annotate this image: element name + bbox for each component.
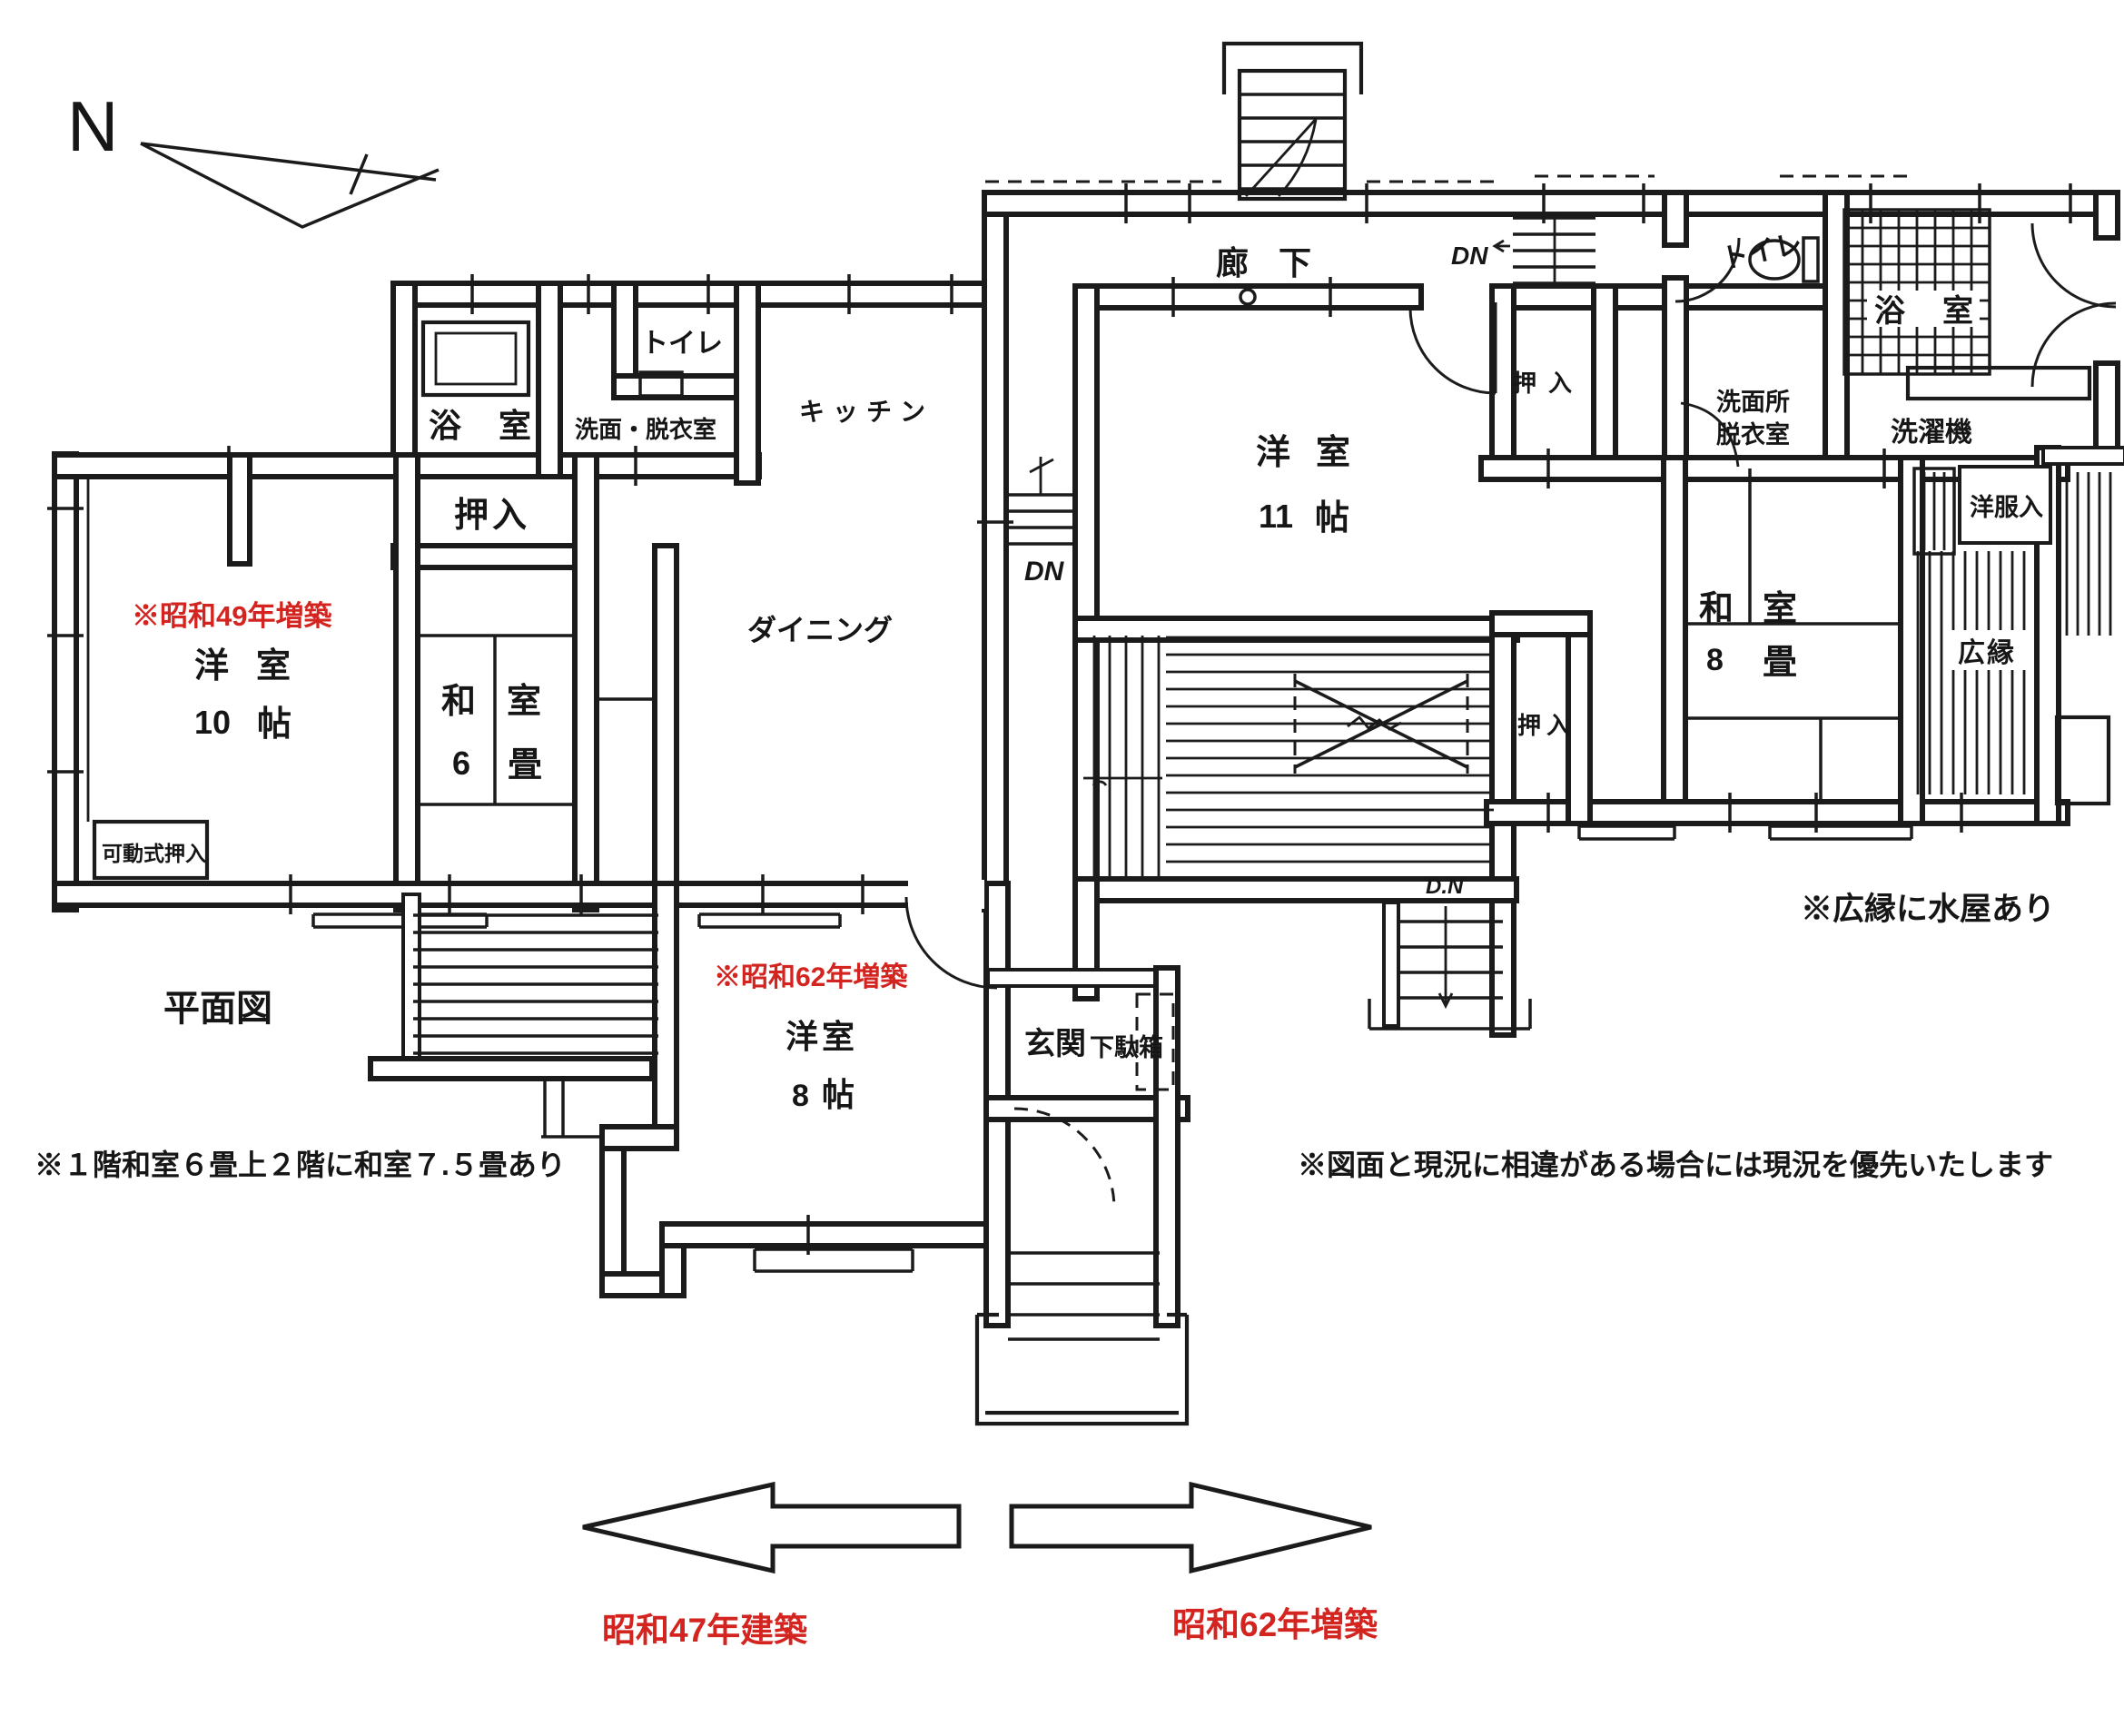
svg-text:広縁: 広縁 [1958, 638, 2016, 668]
svg-text:洋室: 洋室 [785, 1018, 858, 1055]
svg-text:帖: 帖 [822, 1076, 855, 1113]
svg-text:※図面と現況に相違がある場合には現況を優先いたします: ※図面と現況に相違がある場合には現況を優先いたします [1298, 1149, 2053, 1181]
svg-text:洋服入: 洋服入 [1970, 493, 2043, 521]
svg-text:キッチン: キッチン [799, 398, 934, 426]
svg-text:DN: DN [1024, 557, 1065, 587]
svg-text:昭和47年建築: 昭和47年建築 [602, 1612, 808, 1649]
svg-text:押入: 押入 [1513, 370, 1584, 397]
svg-text:畳: 畳 [1763, 644, 1797, 682]
svg-text:昭和62年増築: 昭和62年増築 [1172, 1606, 1378, 1643]
svg-text:11: 11 [1259, 498, 1293, 535]
svg-text:浴室: 浴室 [1874, 293, 2010, 329]
svg-text:8: 8 [1706, 643, 1724, 677]
svg-text:※昭和49年増築: ※昭和49年増築 [132, 600, 332, 632]
svg-text:和室: 和室 [1699, 589, 1826, 628]
svg-text:玄関: 玄関 [1024, 1027, 1086, 1061]
svg-text:廊下: 廊下 [1216, 244, 1341, 281]
svg-text:トイレ: トイレ [641, 329, 723, 359]
svg-text:6: 6 [452, 745, 470, 782]
svg-text:ダイニング: ダイニング [747, 614, 893, 646]
svg-text:洗面・脱衣室: 洗面・脱衣室 [575, 416, 716, 443]
svg-text:洋室: 洋室 [1256, 433, 1376, 472]
svg-text:DN: DN [1451, 242, 1488, 270]
svg-text:浴室: 浴室 [429, 407, 568, 444]
svg-text:畳: 畳 [508, 746, 542, 784]
svg-text:トイレ: トイレ [1719, 229, 1805, 275]
svg-text:洗濯機: 洗濯機 [1891, 418, 1972, 448]
svg-text:N: N [67, 86, 118, 166]
svg-text:洋室: 洋室 [194, 646, 318, 686]
svg-text:帖: 帖 [1315, 499, 1349, 538]
svg-text:押入: 押入 [1517, 712, 1576, 739]
svg-text:10: 10 [194, 704, 231, 741]
svg-text:平面図: 平面図 [163, 989, 272, 1029]
svg-text:※１階和室６畳上２階に和室７.５畳あり: ※１階和室６畳上２階に和室７.５畳あり [35, 1149, 566, 1181]
svg-text:8: 8 [792, 1079, 809, 1113]
svg-text:※広縁に水屋あり: ※広縁に水屋あり [1801, 892, 2055, 927]
svg-text:脱衣室: 脱衣室 [1716, 420, 1790, 449]
svg-text:帖: 帖 [257, 705, 291, 744]
svg-text:洗面所: 洗面所 [1716, 389, 1790, 416]
svg-text:※昭和62年増築: ※昭和62年増築 [714, 962, 908, 992]
svg-text:可動式押入: 可動式押入 [102, 842, 206, 865]
svg-text:和室: 和室 [441, 682, 572, 721]
svg-text:D.N: D.N [1426, 874, 1464, 899]
svg-text:押入: 押入 [454, 497, 530, 535]
svg-text:下駄箱: 下駄箱 [1090, 1033, 1163, 1061]
